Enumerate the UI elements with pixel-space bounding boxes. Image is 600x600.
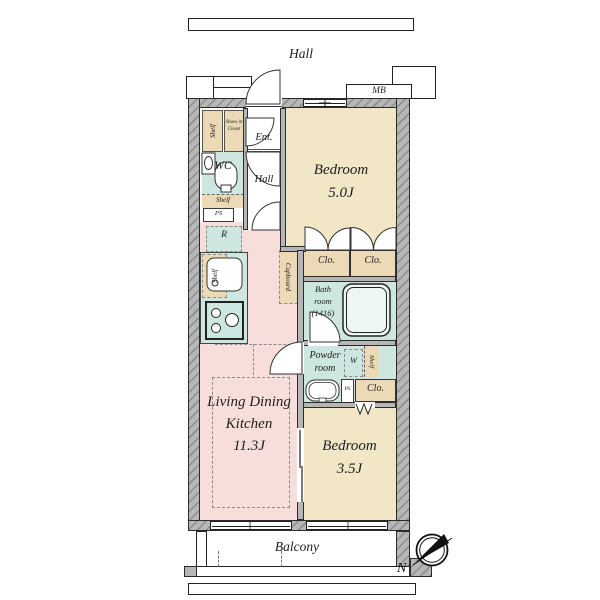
powder-shelf-label: Shelf bbox=[364, 347, 379, 376]
shoes-closet-label: Shoes in Closet bbox=[224, 120, 244, 133]
ldk-name-line1: Living Dining bbox=[198, 394, 300, 411]
balcony-label: Balcony bbox=[240, 539, 354, 555]
refrigerator-label: R bbox=[206, 230, 242, 241]
powder-door-opening bbox=[297, 342, 304, 374]
balcony-left-wall bbox=[196, 531, 207, 567]
entry-shelf-label: Shelf bbox=[202, 112, 223, 150]
balcony-rail-cap-left bbox=[184, 566, 197, 577]
kitchen-shelf-label: Shelf bbox=[202, 256, 227, 296]
entry-step-line bbox=[248, 149, 280, 152]
ldk-size: 11.3J bbox=[198, 438, 300, 455]
ldk-dashed-line-h bbox=[215, 344, 296, 345]
entry-opening bbox=[246, 98, 282, 108]
corridor-bar bbox=[188, 18, 414, 31]
washer-label: W bbox=[344, 356, 363, 366]
ldk-dashed-line-v bbox=[253, 344, 254, 375]
wall-bath-top bbox=[303, 276, 396, 282]
entrance-label: Ent. bbox=[248, 132, 280, 144]
bedroom-main-window bbox=[303, 99, 347, 107]
balcony-rail bbox=[184, 566, 422, 577]
lower-bar bbox=[188, 583, 416, 595]
meter-box-label: MB bbox=[364, 86, 394, 97]
closet-a-label: Clo. bbox=[303, 255, 350, 267]
bedroom-second-size: 3.5J bbox=[303, 461, 396, 478]
pipe-space-lower-label: PS bbox=[341, 386, 354, 392]
powder-label: Powder room bbox=[304, 350, 346, 375]
corridor-label: Hall bbox=[246, 46, 356, 62]
balcony-dash-1 bbox=[218, 551, 219, 567]
bath-door-opening bbox=[308, 340, 338, 346]
wall-top bbox=[188, 98, 410, 108]
stove-box bbox=[205, 301, 244, 340]
bedroom-second-name: Bedroom bbox=[303, 438, 396, 455]
bath-label: Bath room (1416) bbox=[305, 284, 341, 320]
balcony-corner-stub bbox=[410, 558, 432, 577]
ldk-name-line2: Kitchen bbox=[198, 416, 300, 433]
closet-c-label: Clo. bbox=[355, 383, 396, 395]
wc-shelf-label: Shelf bbox=[202, 196, 244, 204]
wall-powder-bedroom bbox=[303, 402, 396, 408]
bifold-opening bbox=[355, 402, 375, 408]
left-pillar-b bbox=[186, 76, 214, 99]
bedroom-main-size: 5.0J bbox=[286, 185, 396, 202]
ldk-window bbox=[210, 521, 292, 530]
wall-left bbox=[188, 98, 200, 531]
bedroom-main-name: Bedroom bbox=[286, 162, 396, 179]
floor-plan: N Hall MB Ent. Hall WC Shelf Shoes in Cl… bbox=[0, 0, 600, 600]
wall-right bbox=[396, 98, 410, 531]
pipe-space-upper-label: PS bbox=[203, 210, 234, 217]
hall-label: Hall bbox=[246, 174, 282, 186]
bedroom-second-window bbox=[306, 521, 388, 530]
ent-hall-floor bbox=[248, 108, 280, 230]
cupboard-label: Cupboard bbox=[279, 252, 298, 302]
wc-label: WC bbox=[206, 160, 240, 173]
closet-b-label: Clo. bbox=[350, 255, 396, 267]
